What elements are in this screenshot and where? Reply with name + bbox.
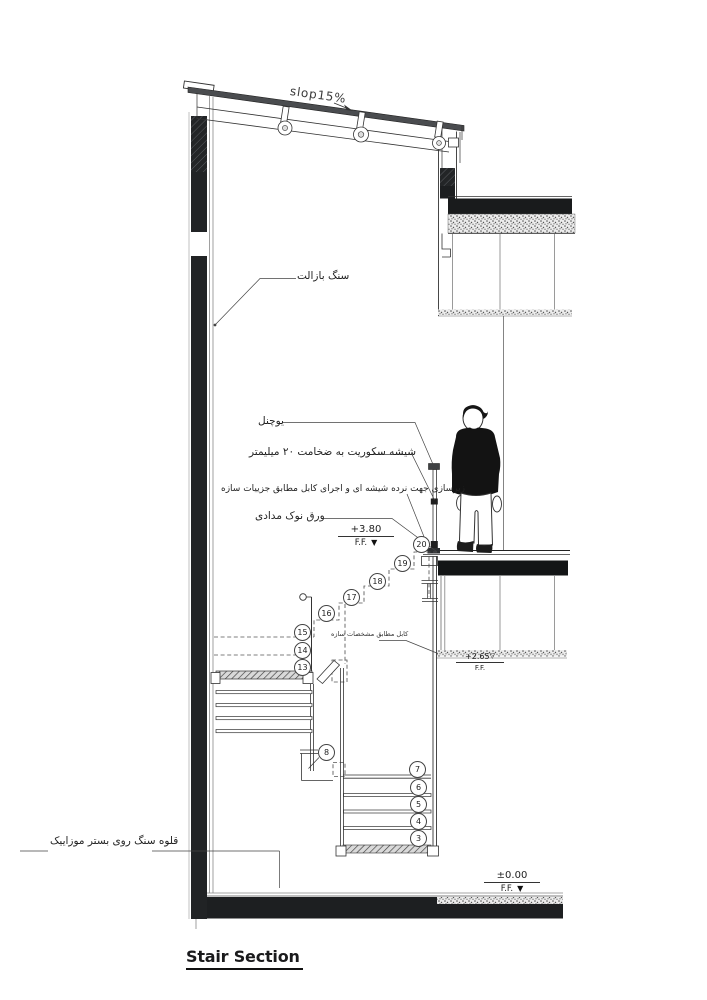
level-value: +3.80 — [338, 524, 394, 537]
upper-flight-hidden — [214, 552, 437, 777]
level-datum: F.F. — [355, 538, 367, 548]
cobblestone-label: قلوه سنگ روی بستر موزاییک — [50, 836, 178, 848]
middle-flight — [216, 691, 312, 733]
level-marker-middle: +2.65▽ F.F. — [456, 652, 504, 672]
level-datum: F.F. — [456, 663, 504, 672]
step-marker: 7 — [409, 761, 426, 778]
glass-railing — [428, 464, 441, 554]
pendant-lights — [278, 106, 446, 149]
structural-cable-label: کابل مطابق مشخصات سازه — [331, 631, 408, 638]
step-marker: 14 — [294, 642, 311, 659]
upper-glazing — [438, 234, 572, 316]
graphite-sheet-label: ورق نوک مدادی — [255, 511, 325, 523]
drawing-title: Stair Section — [186, 947, 303, 970]
level-marker-ground: ±0.00 F.F.▼ — [484, 870, 540, 894]
person-shoe — [457, 541, 474, 552]
stair-stringer — [317, 661, 340, 684]
level-datum: F.F. — [501, 884, 513, 894]
terrace-roof-slab — [442, 197, 575, 258]
mid-floor-slab — [422, 551, 571, 602]
stair-section-drawing: slop15% سنگ بازالت یوچنل شیشه سکوریت به … — [0, 0, 707, 1000]
lower-glazing — [437, 576, 567, 658]
step-marker: 3 — [410, 830, 427, 847]
ground-slab — [207, 893, 563, 919]
level-value: +2.65 — [465, 652, 490, 661]
step-marker: 8 — [318, 744, 335, 761]
person-figure — [452, 406, 502, 554]
step-marker: 19 — [394, 555, 411, 572]
step-marker: 15 — [294, 624, 311, 641]
step-marker: 20 — [413, 536, 430, 553]
railing-substructure-label: زیرسازی جهت نرده شیشه ای و اجرای کابل مط… — [221, 485, 465, 495]
person-pants — [460, 493, 493, 545]
level-marker-upper: +3.80 F.F.▼ — [338, 524, 394, 548]
step-marker: 4 — [410, 813, 427, 830]
level-triangle-icon: ▽ — [490, 652, 495, 660]
step-marker: 13 — [294, 659, 311, 676]
pendant-light — [278, 106, 292, 135]
level-triangle-icon: ▼ — [517, 884, 523, 893]
left-wall — [189, 96, 213, 929]
level-value: ±0.00 — [484, 870, 540, 883]
step-marker: 6 — [410, 779, 427, 796]
step-marker: 18 — [369, 573, 386, 590]
level-triangle-icon: ▼ — [371, 538, 377, 547]
basalt-stone-label: سنگ بازالت — [297, 271, 349, 283]
step-marker: 5 — [410, 796, 427, 813]
section-linework — [0, 0, 707, 1000]
securit-glass-label: شیشه سکوریت به ضخامت ۲۰ میلیمتر — [249, 447, 416, 459]
step-marker: 17 — [343, 589, 360, 606]
handrail-section — [300, 594, 307, 601]
step-marker: 16 — [318, 605, 335, 622]
u-channel-label: یوچنل — [258, 416, 284, 428]
